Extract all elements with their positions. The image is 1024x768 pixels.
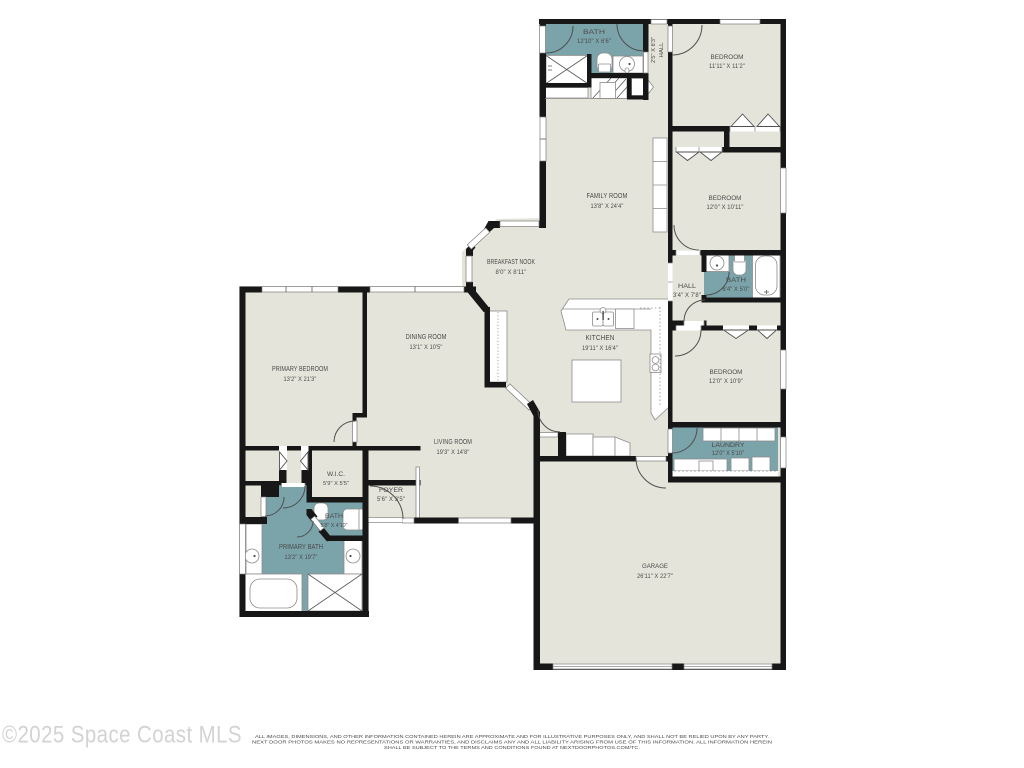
svg-text:19'3" X 14'8": 19'3" X 14'8" bbox=[437, 450, 470, 456]
svg-text:KITCHEN: KITCHEN bbox=[586, 335, 615, 342]
svg-text:W.I.C.: W.I.C. bbox=[327, 472, 345, 478]
svg-text:BREAKFAST NOOK: BREAKFAST NOOK bbox=[487, 259, 535, 266]
svg-text:FOYER: FOYER bbox=[379, 488, 404, 494]
svg-text:PRIMARY BEDROOM: PRIMARY BEDROOM bbox=[272, 366, 328, 373]
svg-text:3'4" X 7'8": 3'4" X 7'8" bbox=[673, 293, 701, 299]
svg-text:12'0" X 10'11": 12'0" X 10'11" bbox=[707, 205, 744, 211]
svg-text:19'11" X 16'4": 19'11" X 16'4" bbox=[582, 346, 618, 352]
svg-text:5'9" X 5'5": 5'9" X 5'5" bbox=[323, 481, 349, 487]
svg-text:NEXT DOOR PHOTOS MAKES NO REPR: NEXT DOOR PHOTOS MAKES NO REPRESENTATION… bbox=[252, 740, 772, 745]
svg-text:FAMILY ROOM: FAMILY ROOM bbox=[587, 193, 628, 200]
svg-text:5'8" X 4'10": 5'8" X 4'10" bbox=[321, 523, 348, 529]
svg-text:HALL: HALL bbox=[659, 43, 665, 58]
svg-text:13'2" X 19'7": 13'2" X 19'7" bbox=[285, 555, 318, 561]
svg-text:12'0" X 5'10": 12'0" X 5'10" bbox=[712, 451, 744, 457]
svg-text:DINING ROOM: DINING ROOM bbox=[406, 334, 447, 341]
svg-text:ALL IMAGES, DIMENSIONS, AND OT: ALL IMAGES, DIMENSIONS, AND OTHER INFORM… bbox=[255, 734, 769, 739]
svg-text:8'4" X 5'0": 8'4" X 5'0" bbox=[723, 287, 750, 293]
svg-text:PRIMARY BATH: PRIMARY BATH bbox=[279, 544, 323, 551]
svg-text:13'8" X 24'4": 13'8" X 24'4" bbox=[591, 204, 624, 210]
svg-text:26'11" X 22'7": 26'11" X 22'7" bbox=[637, 574, 673, 580]
svg-text:LAUNDRY: LAUNDRY bbox=[712, 443, 745, 449]
svg-text:13'1" X 10'5": 13'1" X 10'5" bbox=[410, 345, 443, 351]
svg-text:12'0" X 10'9": 12'0" X 10'9" bbox=[709, 379, 743, 385]
svg-text:11'11" X 11'2": 11'11" X 11'2" bbox=[709, 64, 745, 70]
svg-text:BEDROOM: BEDROOM bbox=[711, 55, 744, 61]
svg-text:5'6" X 3'5": 5'6" X 3'5" bbox=[377, 497, 405, 503]
svg-text:BEDROOM: BEDROOM bbox=[710, 370, 743, 376]
svg-text:12'10" X 6'6": 12'10" X 6'6" bbox=[577, 39, 611, 45]
svg-text:8'0" X 8'11": 8'0" X 8'11" bbox=[496, 270, 527, 276]
svg-text:SHALL BE SUBJECT TO THE TERMS: SHALL BE SUBJECT TO THE TERMS AND CONDIT… bbox=[384, 745, 640, 750]
svg-text:BATH: BATH bbox=[583, 30, 605, 36]
svg-text:GARAGE: GARAGE bbox=[642, 564, 668, 570]
svg-text:BATH: BATH bbox=[325, 514, 343, 520]
svg-text:HALL: HALL bbox=[678, 284, 697, 290]
svg-text:BATH: BATH bbox=[726, 278, 746, 284]
svg-text:2'5" X 8'3": 2'5" X 8'3" bbox=[651, 37, 657, 63]
svg-text:BEDROOM: BEDROOM bbox=[709, 196, 742, 202]
svg-text:©2025 Space Coast MLS: ©2025 Space Coast MLS bbox=[2, 722, 242, 749]
svg-text:13'2" X 21'3": 13'2" X 21'3" bbox=[284, 377, 317, 383]
svg-text:LIVING ROOM: LIVING ROOM bbox=[434, 439, 472, 446]
